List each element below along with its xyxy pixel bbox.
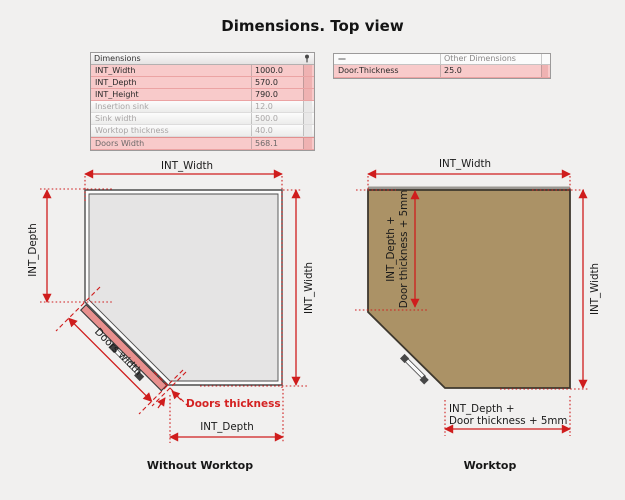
dim-label-bottom: INT_Depth bbox=[200, 421, 254, 433]
dim-label-top: INT_Width bbox=[161, 160, 213, 172]
dim-label-right: INT_Width bbox=[303, 262, 315, 314]
diagram-without-worktop: INT_Width INT_Depth INT_Width INT_Depth … bbox=[27, 160, 315, 472]
dim-label-bottom-2: Door thickness + 5mm bbox=[449, 415, 567, 427]
dim-label-top: INT_Width bbox=[439, 158, 491, 170]
dim-label-bottom-1: INT_Depth + bbox=[449, 403, 514, 415]
caption-without-worktop: Without Worktop bbox=[147, 459, 253, 472]
door-thickness-arrow bbox=[172, 391, 181, 400]
dim-label-inner-2: Door thickness + 5mm bbox=[398, 190, 410, 308]
dim-label-right: INT_Width bbox=[589, 263, 601, 315]
door-thickness-label: Doors thickness bbox=[186, 398, 281, 410]
page: Dimensions. Top view Dimensions INT_Widt… bbox=[0, 0, 625, 500]
caption-worktop: Worktop bbox=[464, 459, 517, 472]
dim-label-left: INT_Depth bbox=[27, 223, 39, 277]
diagram-worktop: INT_Width INT_Depth + Door thickness + 5… bbox=[355, 158, 601, 472]
top-view-drawing: INT_Width INT_Depth INT_Width INT_Depth … bbox=[0, 0, 625, 500]
dim-label-inner-1: INT_Depth + bbox=[385, 216, 397, 281]
